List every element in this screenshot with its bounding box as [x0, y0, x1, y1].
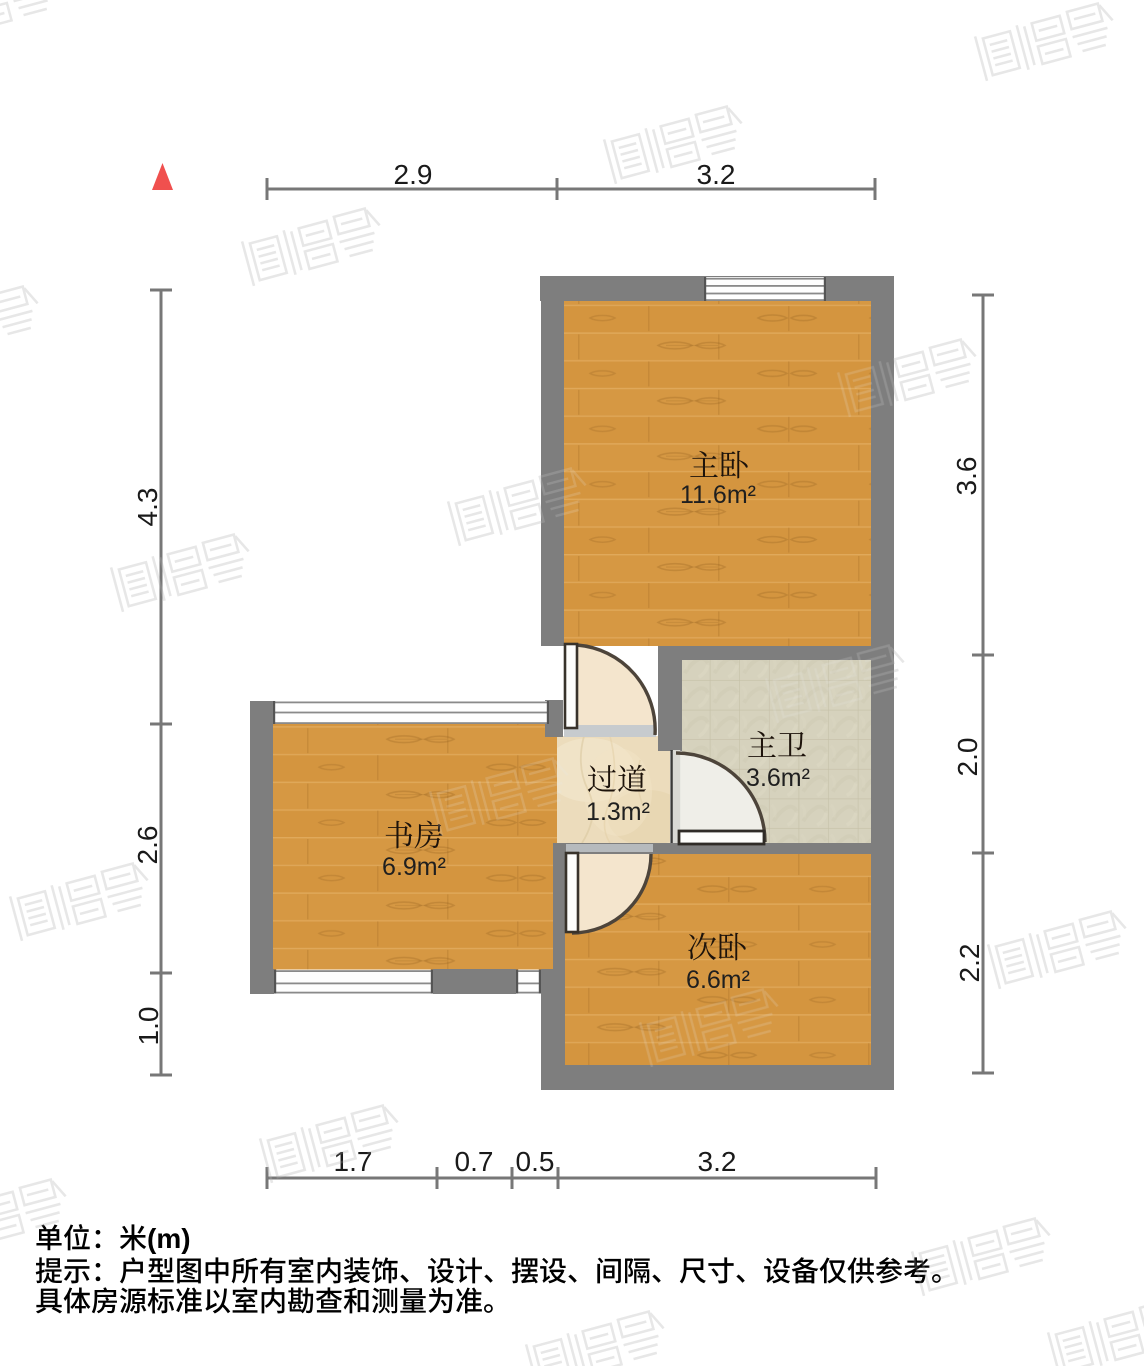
svg-text:3.6m²: 3.6m²: [746, 764, 810, 792]
svg-text:0.5: 0.5: [516, 1146, 555, 1177]
svg-text:1.0: 1.0: [133, 1007, 164, 1046]
svg-text:2.2: 2.2: [954, 944, 985, 983]
svg-text:1.3m²: 1.3m²: [586, 798, 650, 826]
svg-text:3.2: 3.2: [698, 1146, 737, 1177]
svg-text:2.9: 2.9: [394, 159, 433, 190]
svg-text:0.7: 0.7: [455, 1146, 494, 1177]
svg-text:3.2: 3.2: [697, 159, 736, 190]
svg-text:4.3: 4.3: [132, 488, 163, 527]
svg-text:2.0: 2.0: [952, 738, 983, 777]
svg-text:3.6: 3.6: [951, 457, 982, 496]
svg-text:6.9m²: 6.9m²: [382, 853, 446, 881]
svg-text:11.6m²: 11.6m²: [680, 481, 756, 509]
svg-text:6.6m²: 6.6m²: [686, 966, 750, 994]
svg-text:(m): (m): [147, 1223, 191, 1254]
svg-text:2.6: 2.6: [132, 826, 163, 865]
